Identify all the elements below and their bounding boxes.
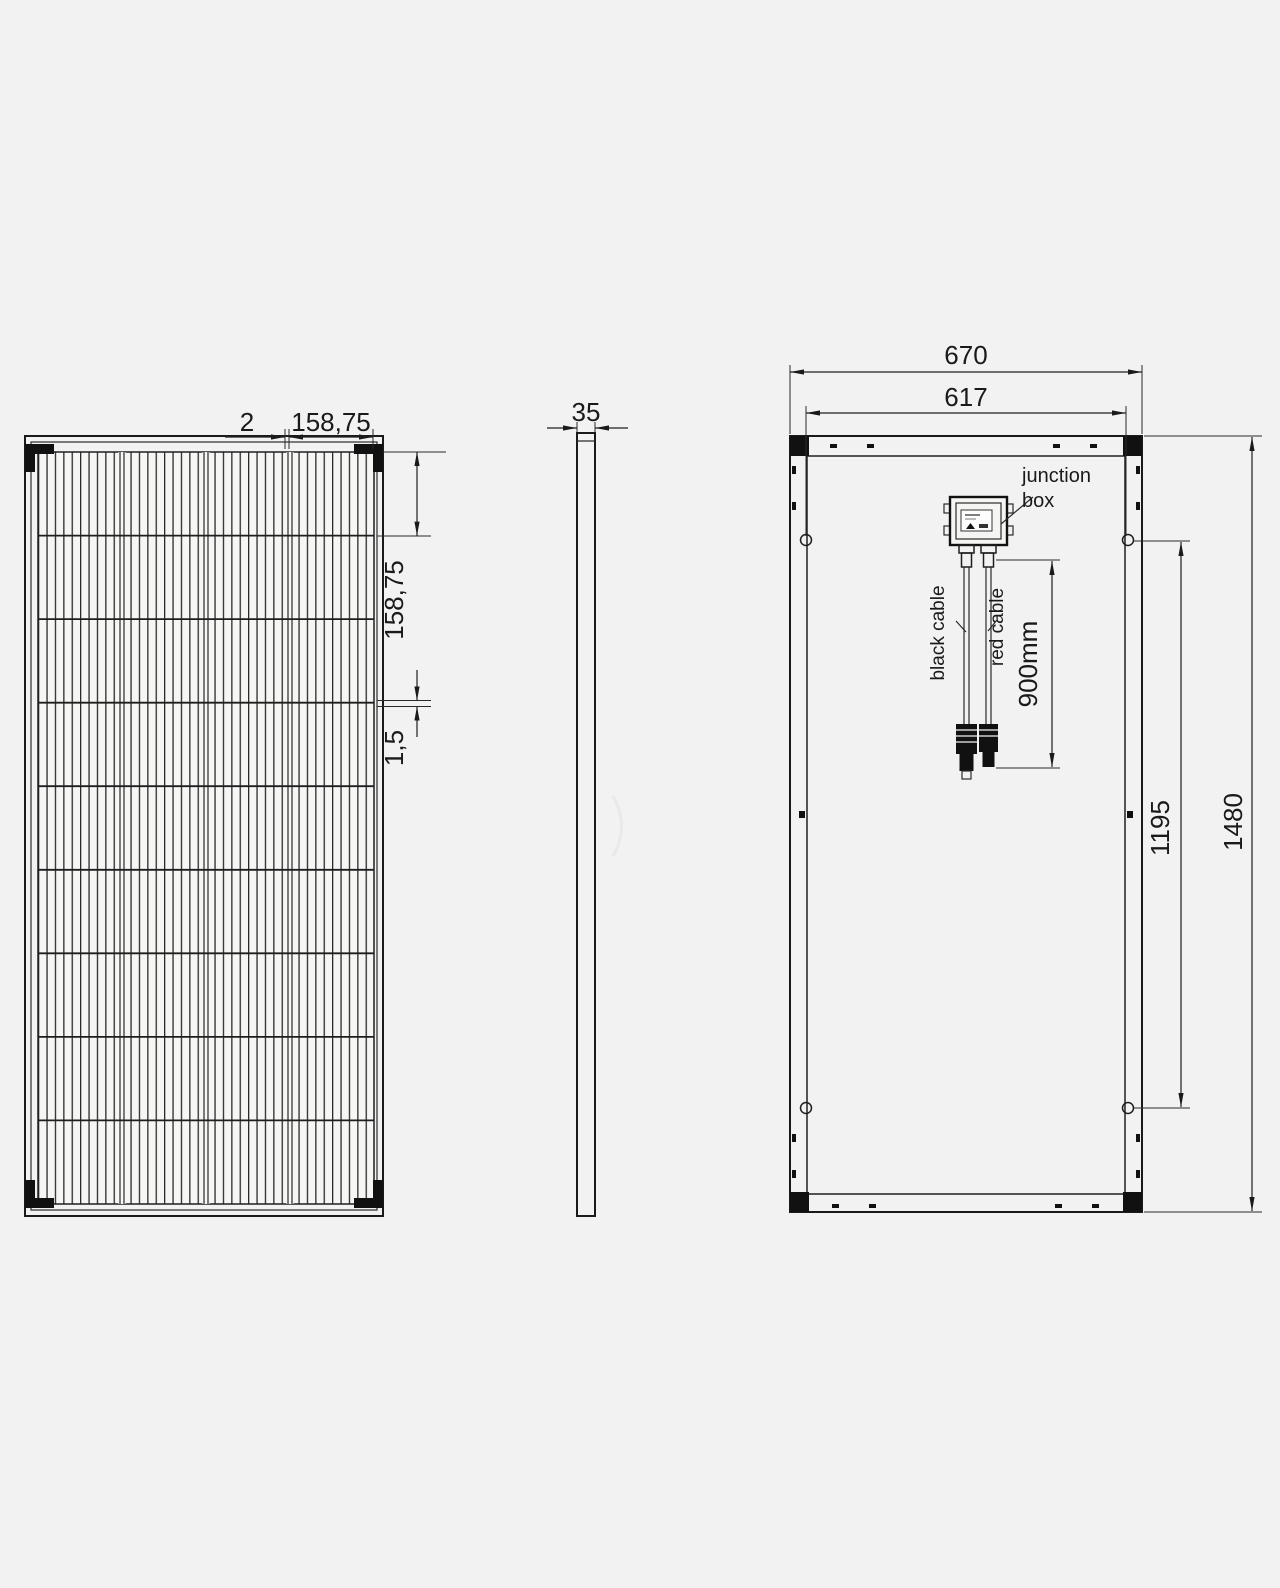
- slot-mark: [1136, 1134, 1140, 1142]
- slot-mark: [1053, 444, 1060, 448]
- mounting-hole: [801, 1103, 812, 1114]
- corner-block: [790, 1192, 809, 1212]
- dim-outer-height: 1480: [1218, 793, 1248, 851]
- corner-key: [25, 444, 35, 472]
- slot-mark: [792, 502, 796, 510]
- slot-mark: [792, 1134, 796, 1142]
- front-top-dimensions: 2 158,75: [225, 407, 373, 449]
- slot-mark: [1136, 502, 1140, 510]
- dim-mounting-width: 617: [944, 382, 987, 412]
- connector-stem: [983, 752, 995, 767]
- slot-mark: [867, 444, 874, 448]
- cable-gland: [981, 545, 996, 553]
- dim-mounting-height: 1195: [1145, 800, 1175, 856]
- connector-body: [956, 724, 977, 754]
- front-right-dimensions: 158,75 1,5: [377, 452, 446, 766]
- slot-mark: [1136, 1170, 1140, 1178]
- junction-box-label-line2: box: [1022, 490, 1054, 512]
- junction-box: [944, 497, 1013, 567]
- dim-cell-height-right: 158,75: [379, 560, 409, 640]
- slot-mark: [1092, 1204, 1099, 1208]
- dim-cell-gap-top: 2: [240, 407, 254, 437]
- front-view: 2 158,75 158,75 1,5: [25, 407, 446, 1216]
- red-cable-label: red cable: [987, 588, 1008, 666]
- connector-tip: [962, 771, 971, 779]
- slot-mark: [1090, 444, 1097, 448]
- cable-gland: [959, 545, 974, 553]
- slot-mark: [869, 1204, 876, 1208]
- slot-mark: [1136, 466, 1140, 474]
- slot-mark: [792, 1170, 796, 1178]
- corner-block: [1123, 1192, 1142, 1212]
- label-detail: [979, 524, 988, 528]
- cable-gland: [984, 553, 994, 567]
- side-view: 35: [547, 397, 628, 1216]
- mounting-hole: [1123, 1103, 1134, 1114]
- slot-mark: [832, 1204, 839, 1208]
- side-profile: [577, 433, 595, 1216]
- slot-mark: [792, 466, 796, 474]
- technical-drawing-canvas: 2 158,75 158,75 1,5 35: [0, 0, 1280, 1588]
- black-cable-label: black cable: [928, 585, 949, 680]
- cable-gland: [962, 553, 972, 567]
- dim-cell-width-top: 158,75: [291, 407, 371, 437]
- drawing-svg: 2 158,75 158,75 1,5 35: [0, 0, 1280, 1588]
- ground-hole-mark: [799, 811, 805, 818]
- dim-cell-gap-right: 1,5: [379, 730, 409, 766]
- mounting-hole: [801, 535, 812, 546]
- connector-body: [979, 724, 998, 752]
- rear-view: 670 617 1480 1195 900mm junction box bla: [790, 340, 1262, 1212]
- dim-outer-width: 670: [944, 340, 987, 370]
- slot-mark: [830, 444, 837, 448]
- junction-box-label-line1: junction: [1021, 465, 1091, 487]
- slot-mark: [1055, 1204, 1062, 1208]
- dim-cable-length: 900mm: [1013, 621, 1043, 708]
- corner-key: [25, 1180, 35, 1208]
- mc4-connector-black: [956, 724, 977, 779]
- mounting-holes: [801, 535, 1134, 1114]
- corner-key: [373, 444, 383, 472]
- watermark-arc: [613, 796, 622, 856]
- corner-key: [373, 1180, 383, 1208]
- frame-slot-marks: [792, 444, 1140, 1208]
- mc4-connector-red: [979, 724, 998, 767]
- ground-hole-mark: [1127, 811, 1133, 818]
- dim-thickness: 35: [572, 397, 601, 427]
- connector-stem: [960, 754, 974, 771]
- mounting-hole: [1123, 535, 1134, 546]
